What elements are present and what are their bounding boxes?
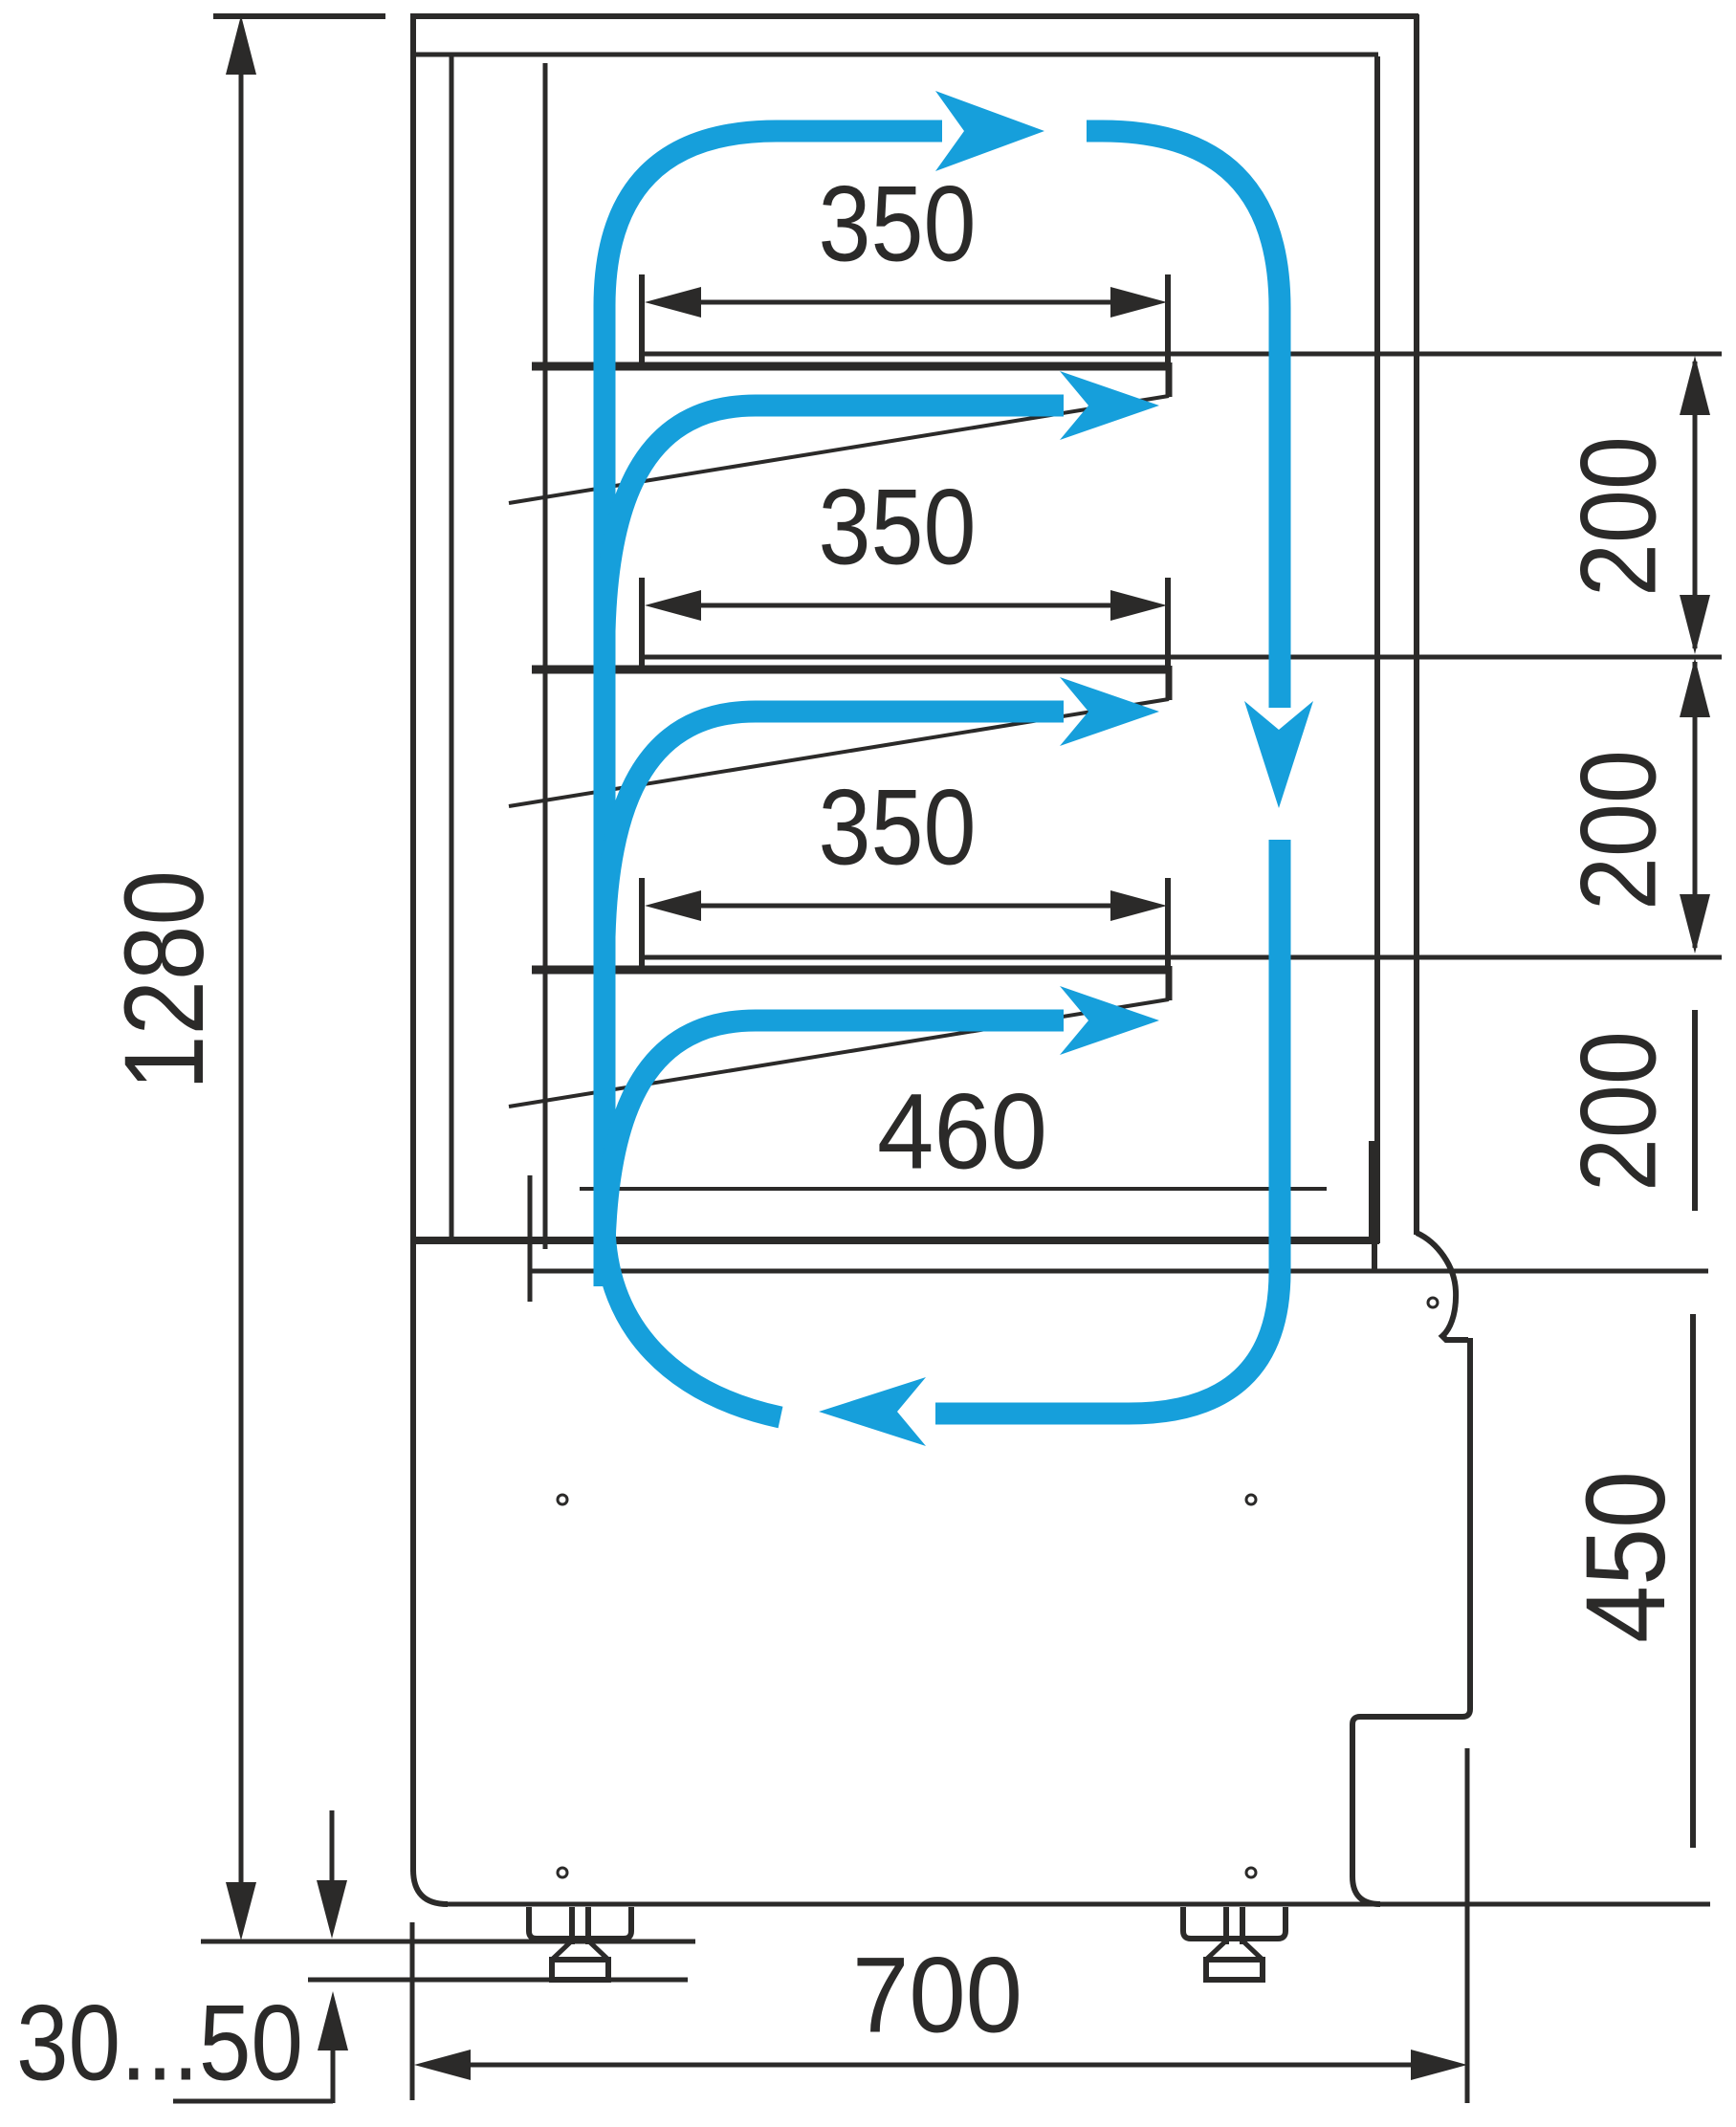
svg-text:350: 350 (819, 468, 977, 587)
svg-text:350: 350 (819, 164, 977, 284)
svg-text:200: 200 (1559, 1031, 1679, 1192)
svg-text:460: 460 (877, 1072, 1047, 1192)
svg-text:700: 700 (852, 1936, 1022, 2055)
svg-text:450: 450 (1563, 1471, 1689, 1643)
svg-text:350: 350 (819, 768, 977, 888)
svg-text:30...50: 30...50 (16, 1984, 303, 2103)
svg-text:200: 200 (1559, 436, 1679, 597)
svg-text:1280: 1280 (101, 870, 228, 1090)
svg-text:200: 200 (1559, 750, 1679, 910)
